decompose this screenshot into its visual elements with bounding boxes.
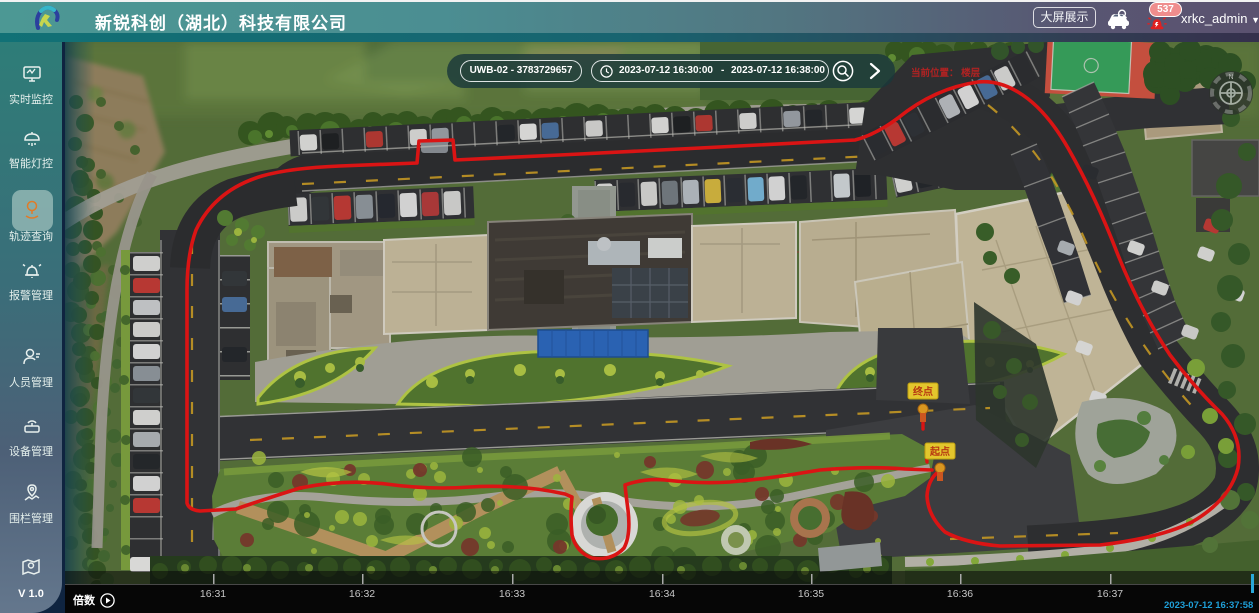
svg-text:16:34: 16:34 [649,588,675,600]
svg-text:16:33: 16:33 [499,588,525,600]
svg-text:16:32: 16:32 [349,588,375,600]
svg-text:16:31: 16:31 [200,588,226,600]
svg-text:16:36: 16:36 [947,588,973,600]
svg-text:16:35: 16:35 [798,588,824,600]
svg-text:16:37: 16:37 [1097,588,1123,600]
